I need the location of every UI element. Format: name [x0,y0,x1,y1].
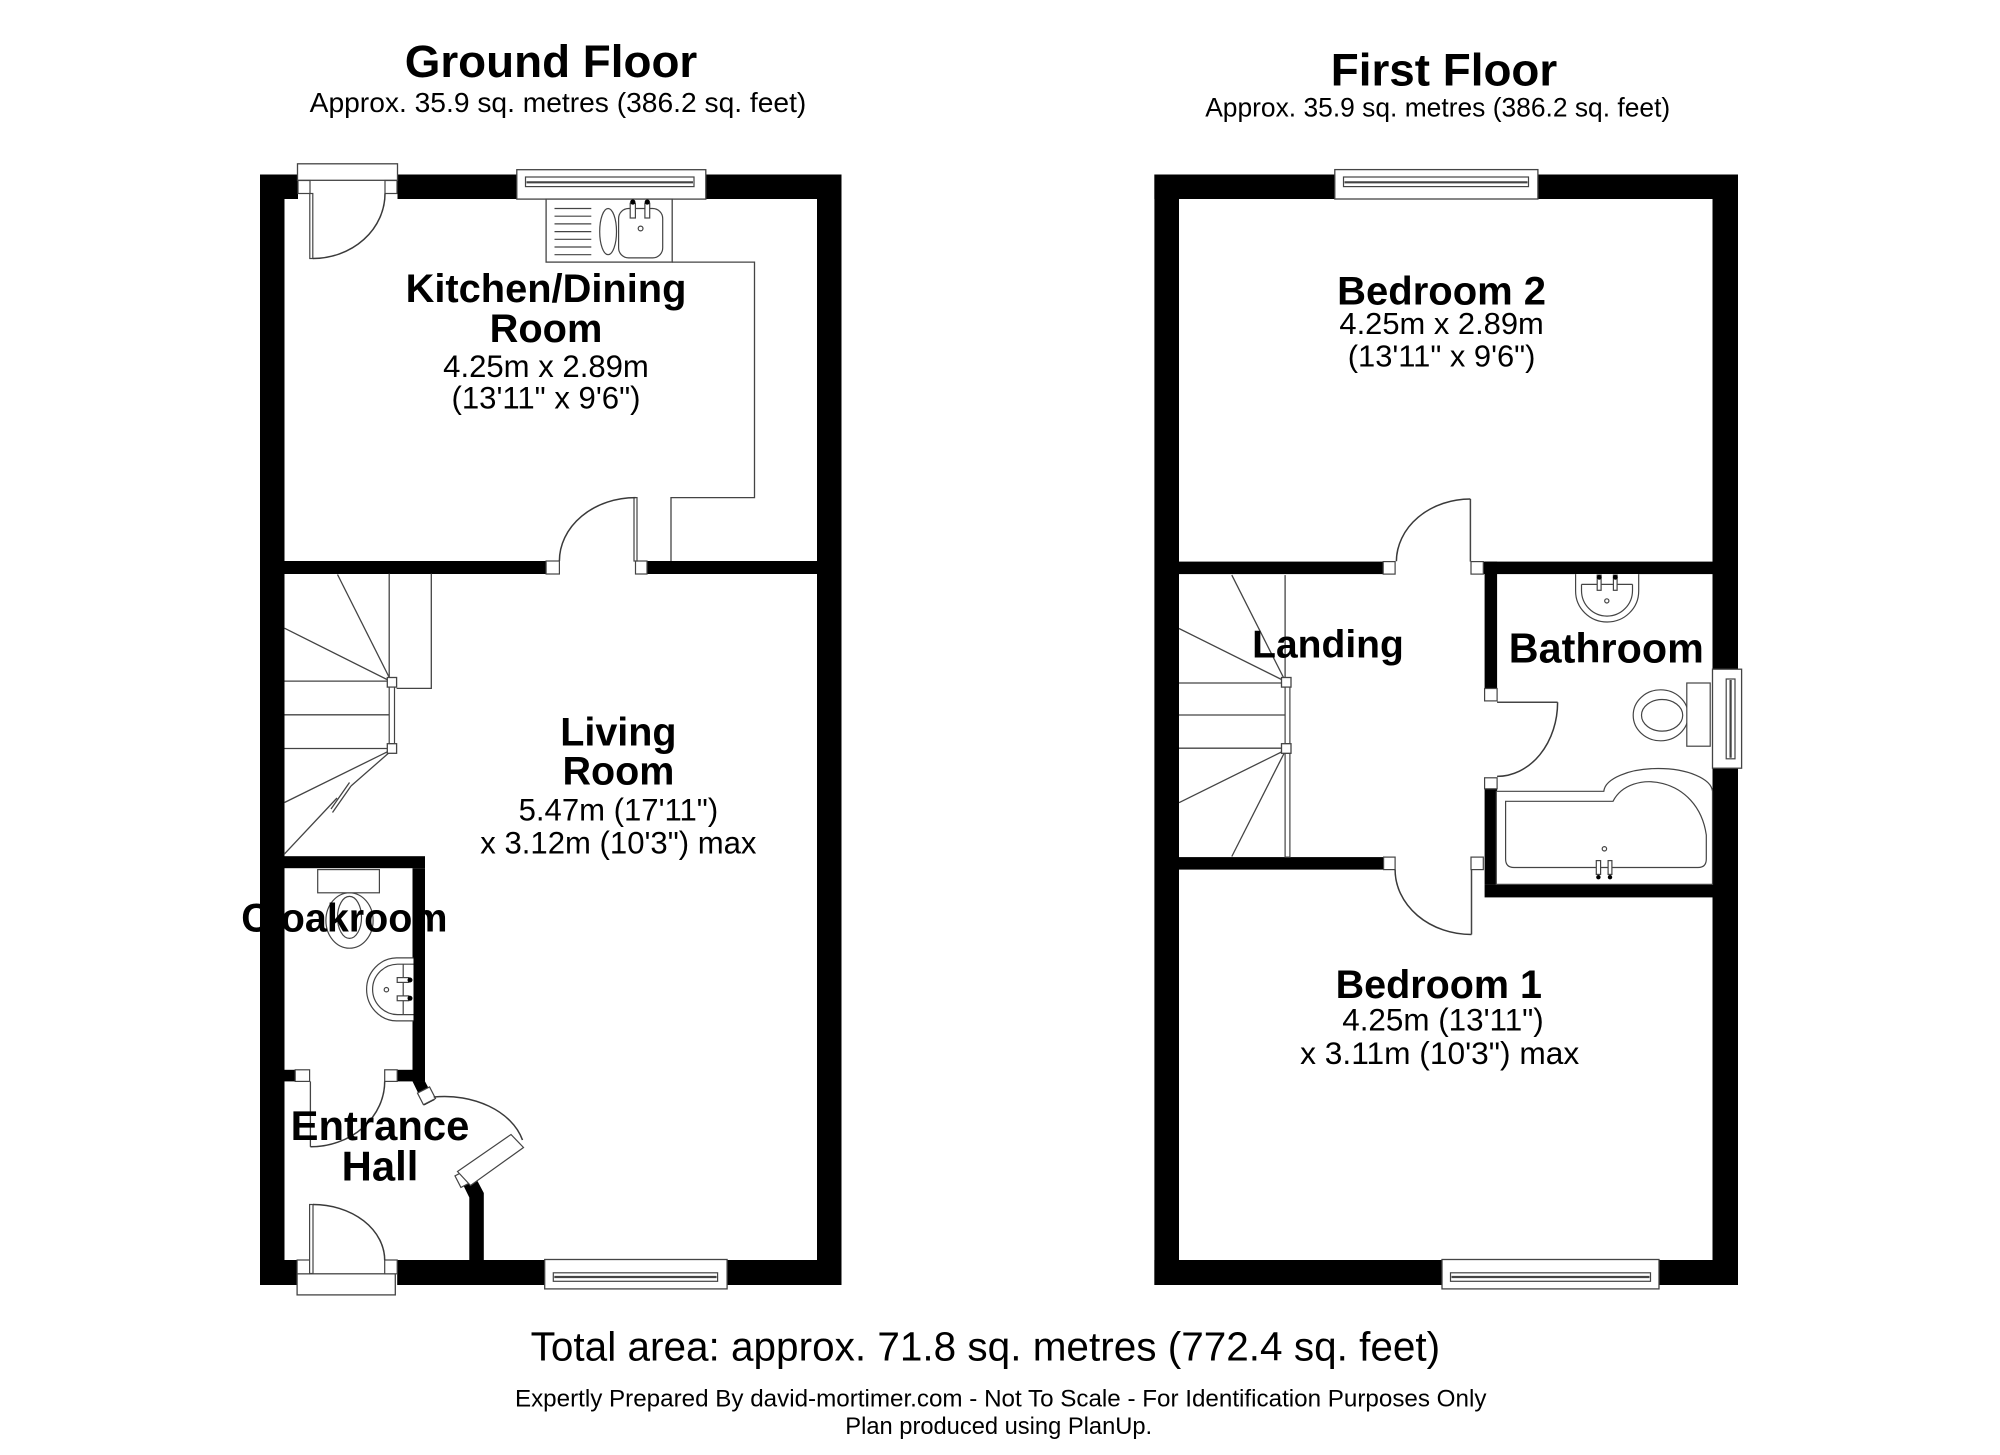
svg-text:Approx. 35.9 sq. metres (386.2: Approx. 35.9 sq. metres (386.2 sq. feet) [310,86,807,118]
svg-text:Approx. 35.9 sq. metres (386.2: Approx. 35.9 sq. metres (386.2 sq. feet) [1205,93,1670,123]
svg-text:4.25m (13'11"): 4.25m (13'11") [1342,1003,1544,1038]
svg-text:Cloakroom: Cloakroom [241,896,447,940]
svg-text:x 3.12m (10'3") max: x 3.12m (10'3") max [480,826,757,861]
svg-text:4.25m x 2.89m: 4.25m x 2.89m [443,349,649,384]
svg-text:Plan produced using PlanUp.: Plan produced using PlanUp. [845,1414,1152,1440]
svg-text:Living: Living [560,711,676,755]
svg-text:Hall: Hall [342,1142,419,1189]
svg-text:(13'11" x 9'6"): (13'11" x 9'6") [452,381,641,416]
svg-text:(13'11" x 9'6"): (13'11" x 9'6") [1348,338,1536,373]
svg-text:Bedroom 1: Bedroom 1 [1336,963,1542,1007]
svg-text:Room: Room [562,750,674,794]
svg-text:Bathroom: Bathroom [1509,626,1704,672]
svg-text:First Floor: First Floor [1331,45,1558,96]
svg-text:5.47m (17'11"): 5.47m (17'11") [519,793,719,828]
svg-text:x 3.11m (10'3") max: x 3.11m (10'3") max [1300,1035,1579,1071]
svg-text:Expertly Prepared By david-mor: Expertly Prepared By david-mortimer.com … [515,1385,1487,1412]
svg-text:Kitchen/Dining: Kitchen/Dining [406,267,687,311]
svg-text:Landing: Landing [1252,624,1404,667]
svg-text:Room: Room [490,307,603,351]
svg-text:Ground Floor: Ground Floor [405,36,698,87]
svg-text:Total area: approx. 71.8 sq. m: Total area: approx. 71.8 sq. metres (772… [531,1324,1441,1370]
svg-text:4.25m x 2.89m: 4.25m x 2.89m [1339,306,1543,341]
